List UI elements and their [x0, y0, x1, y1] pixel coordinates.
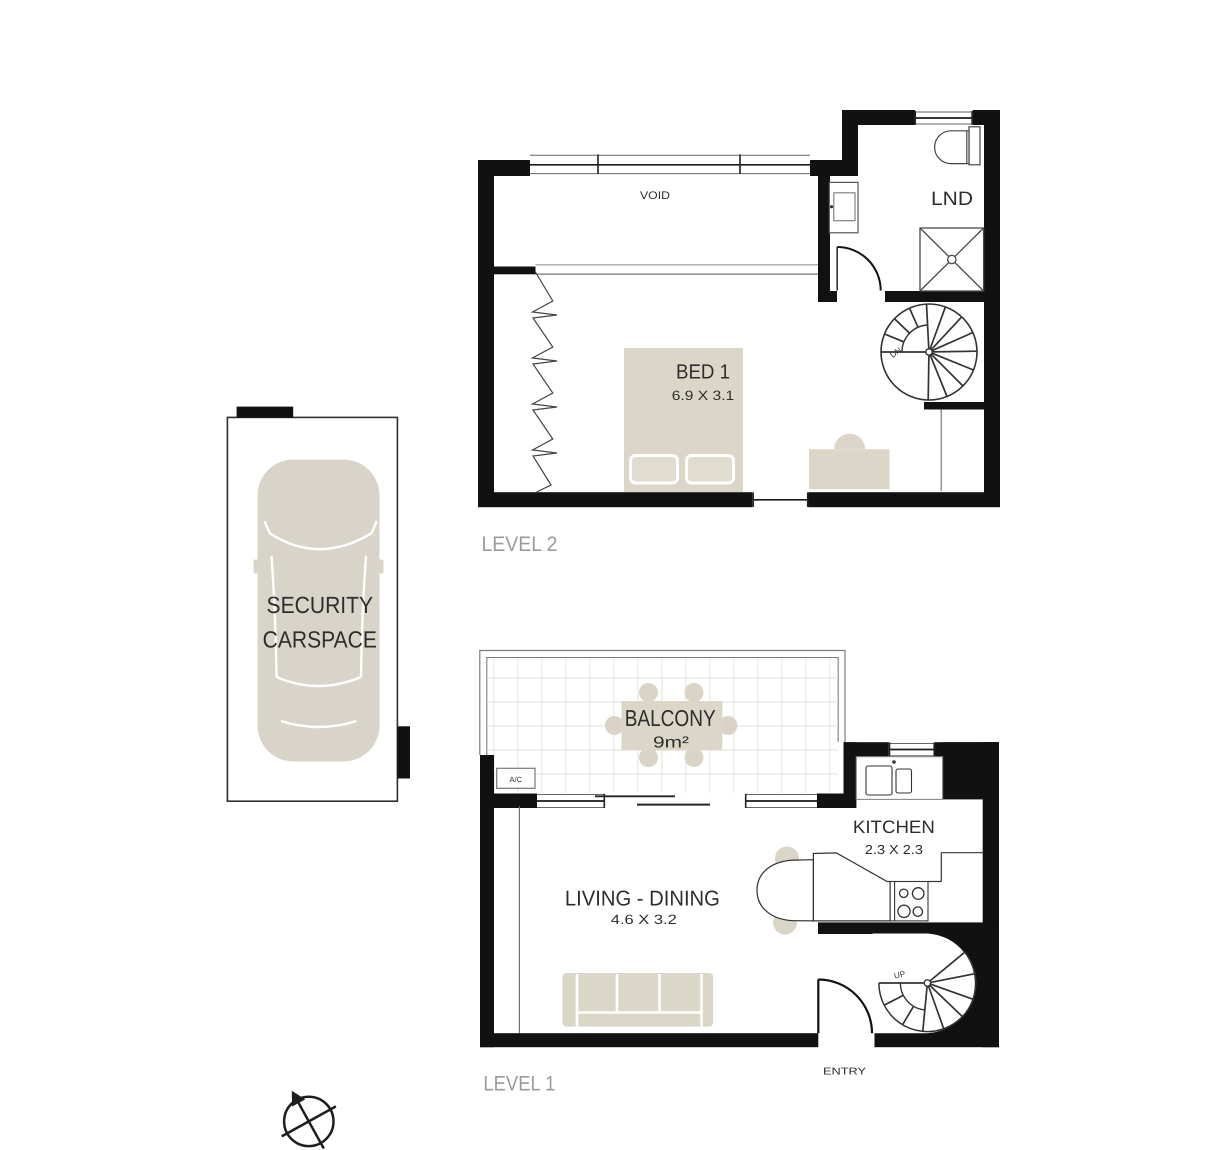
svg-text:LEVEL 1: LEVEL 1 — [483, 1073, 555, 1096]
svg-text:A/C: A/C — [510, 775, 523, 784]
svg-text:CARSPACE: CARSPACE — [263, 627, 377, 653]
svg-text:LEVEL 2: LEVEL 2 — [482, 533, 558, 556]
svg-text:ENTRY: ENTRY — [823, 1066, 866, 1077]
svg-text:VOID: VOID — [640, 190, 670, 202]
svg-text:BED 1: BED 1 — [676, 361, 730, 384]
svg-text:4.6 X 3.2: 4.6 X 3.2 — [611, 912, 677, 927]
svg-text:SECURITY: SECURITY — [267, 592, 374, 618]
svg-text:BALCONY: BALCONY — [625, 705, 716, 731]
svg-text:9m²: 9m² — [653, 735, 690, 752]
svg-text:6.9 X 3.1: 6.9 X 3.1 — [672, 388, 735, 403]
svg-text:LIVING - DINING: LIVING - DINING — [565, 887, 720, 911]
svg-text:LND: LND — [931, 188, 973, 210]
svg-text:KITCHEN: KITCHEN — [853, 817, 935, 837]
svg-text:2.3 X 2.3: 2.3 X 2.3 — [865, 842, 923, 857]
